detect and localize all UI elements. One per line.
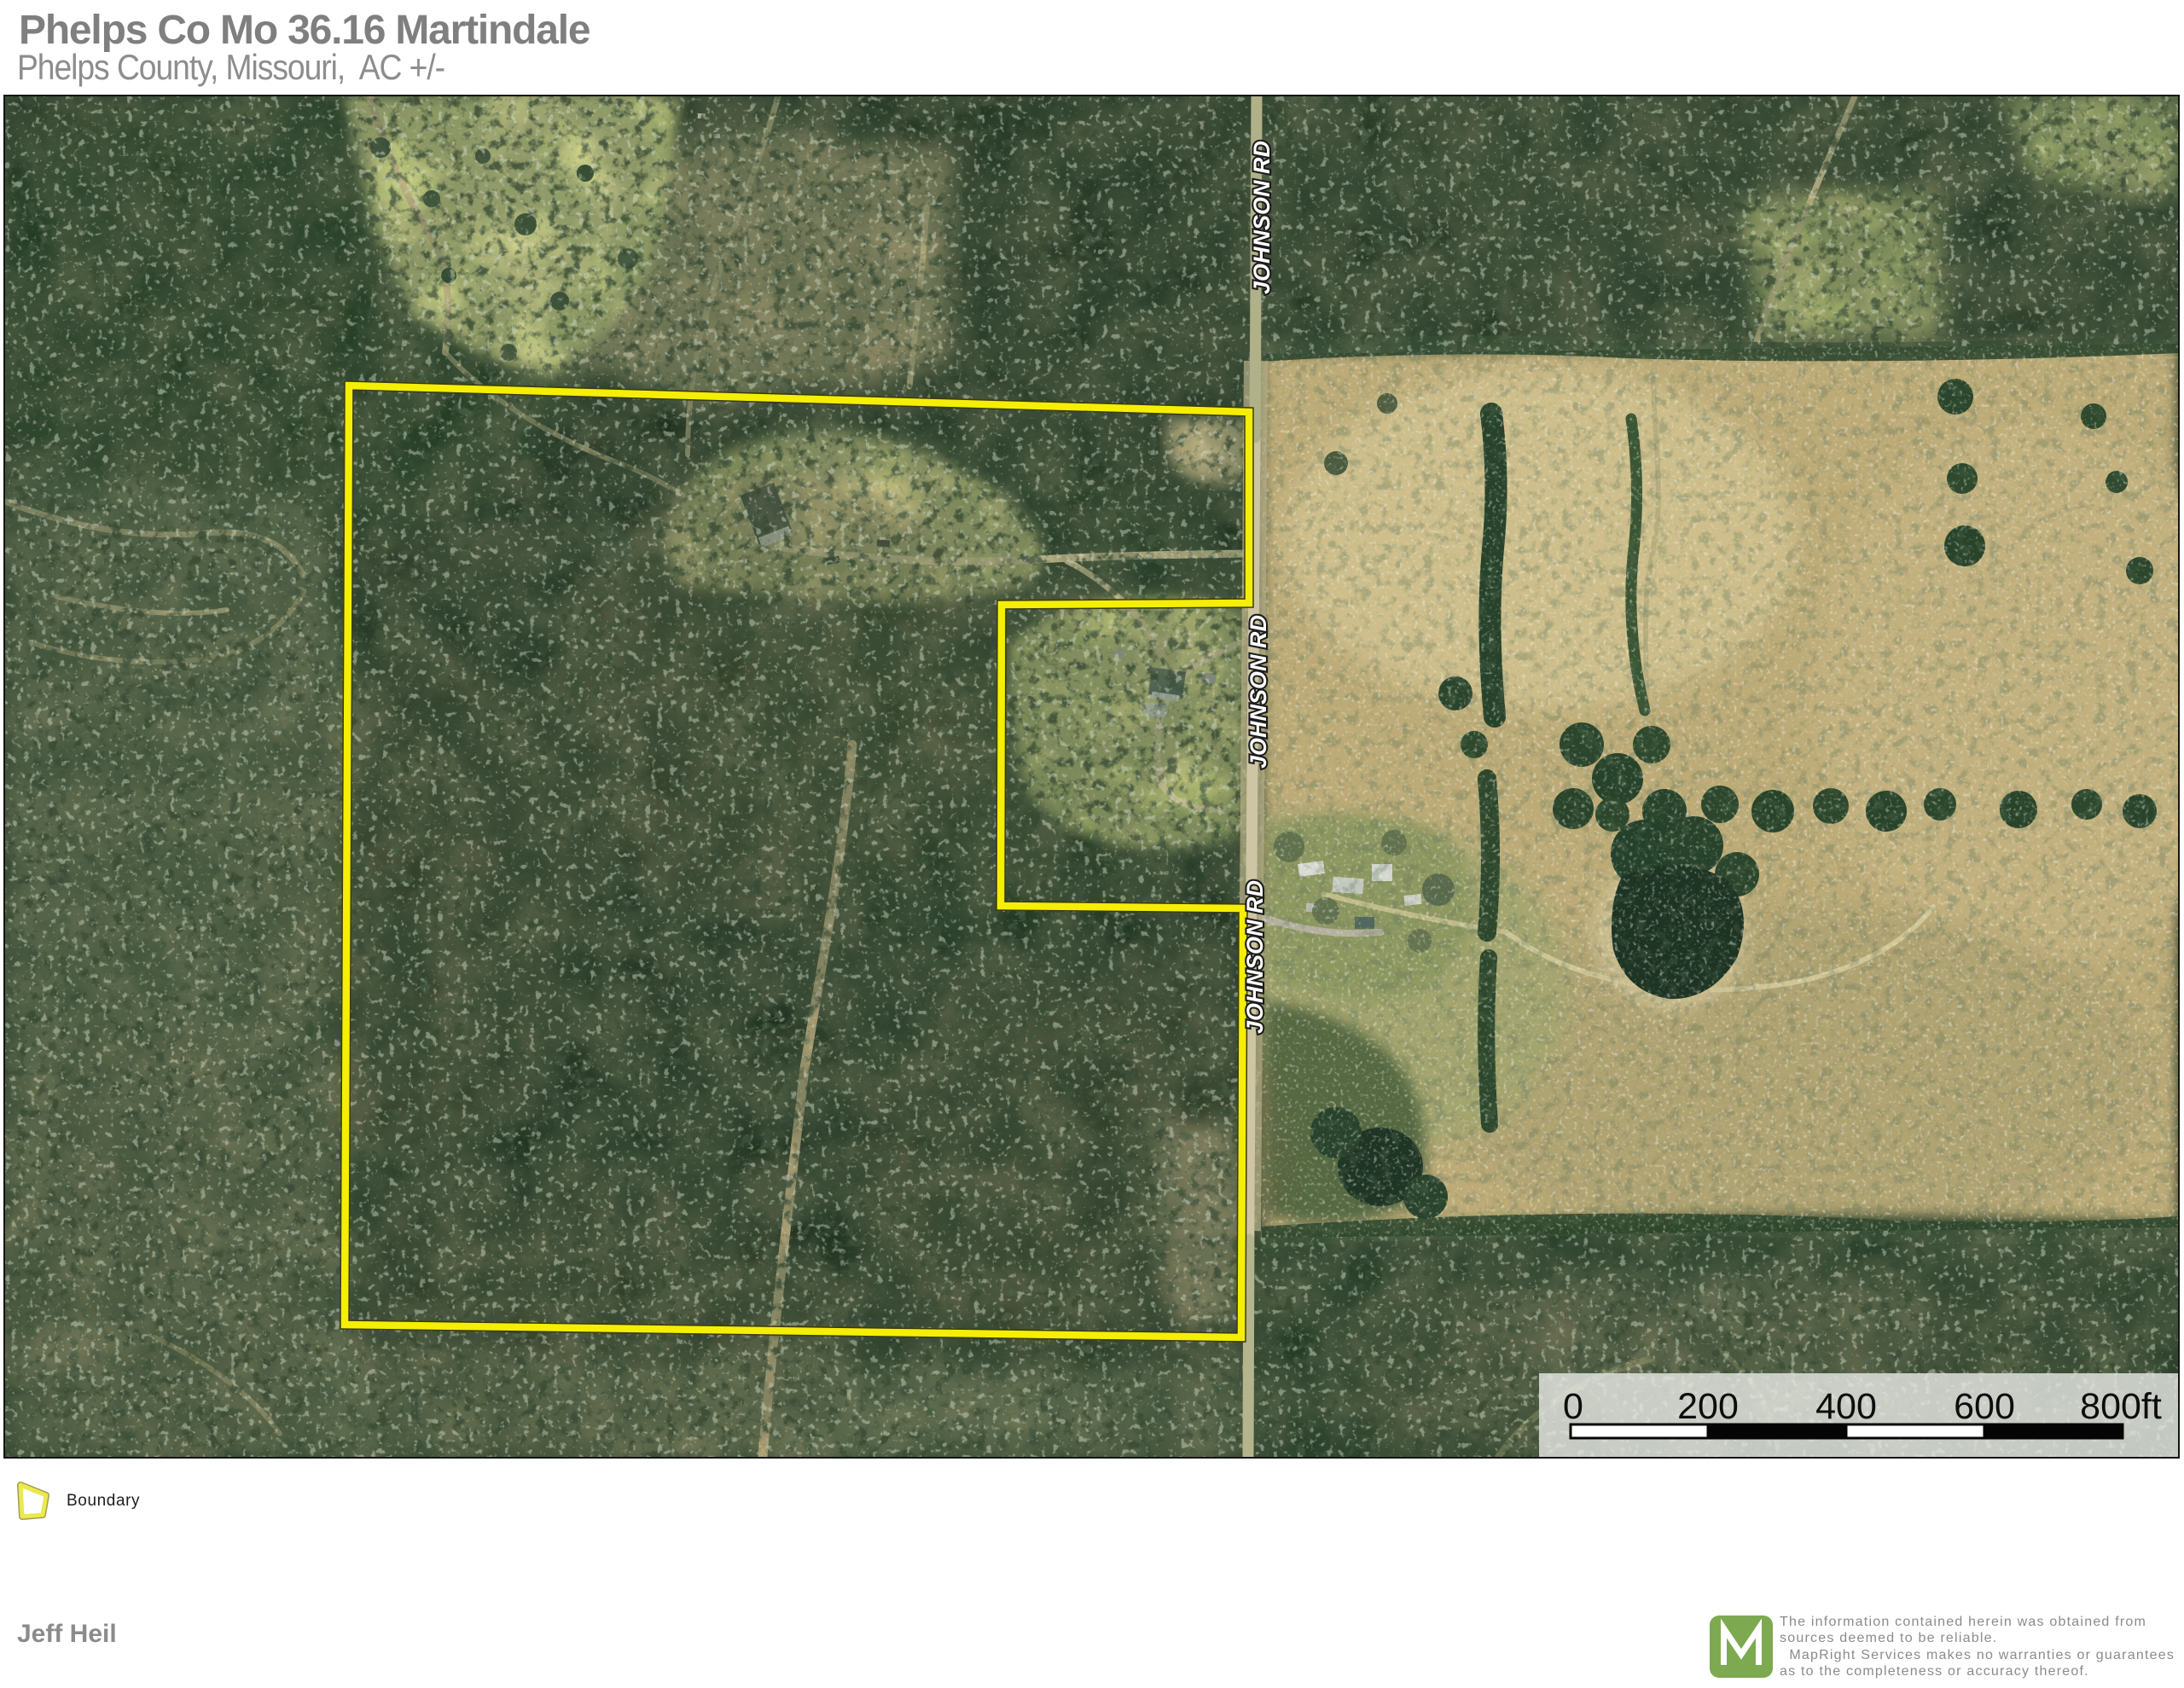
svg-text:200: 200	[1677, 1386, 1739, 1427]
svg-text:JOHNSON RD: JOHNSON RD	[1249, 141, 1275, 294]
svg-text:0: 0	[1563, 1386, 1583, 1427]
svg-text:JOHNSON RD: JOHNSON RD	[1246, 615, 1271, 769]
svg-text:400: 400	[1815, 1386, 1877, 1427]
svg-text:JOHNSON RD: JOHNSON RD	[1242, 880, 1268, 1034]
svg-text:600: 600	[1954, 1386, 2015, 1427]
svg-text:800ft: 800ft	[2080, 1386, 2162, 1427]
